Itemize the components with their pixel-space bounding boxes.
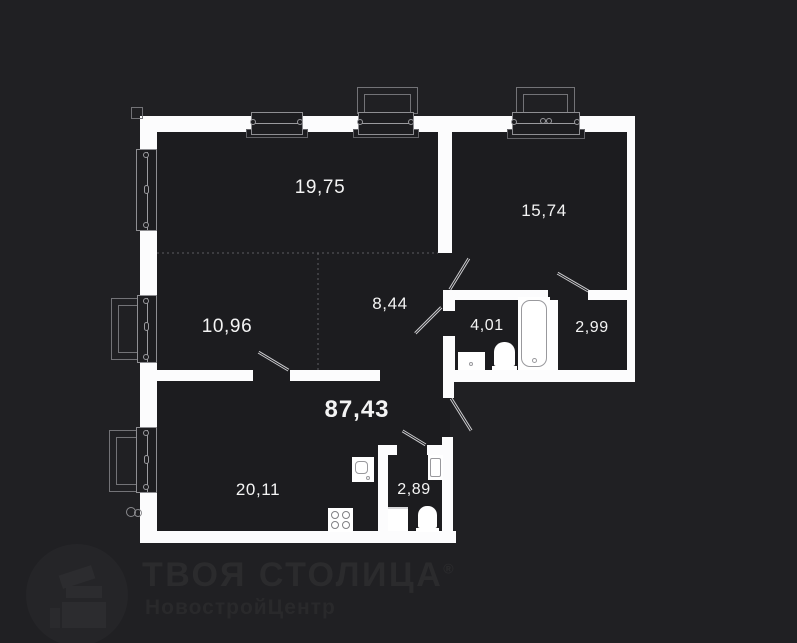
wall-bath-left-bottom — [443, 336, 455, 370]
balcony-outline — [364, 94, 411, 114]
window-hinge — [250, 119, 256, 125]
window-hinge — [143, 222, 149, 228]
registered-mark: ® — [443, 561, 456, 577]
washing-machine-icon — [388, 507, 408, 531]
balcony-outline — [116, 437, 137, 485]
window-icon — [512, 112, 580, 135]
wall-living-bedroom — [438, 132, 452, 253]
window-hinge — [143, 152, 149, 158]
wall-bottom-right — [443, 370, 635, 382]
room-area-bathroom: 4,01 — [442, 317, 532, 335]
wall-mid-right — [290, 370, 380, 381]
room-area-wardrobe: 2,99 — [547, 319, 637, 337]
wall-wardrobe-top — [588, 290, 627, 300]
balcony-outline — [118, 305, 138, 353]
developer-logo-icon — [26, 544, 128, 643]
window-hinge — [143, 298, 149, 304]
window-hinge — [143, 484, 149, 490]
room-area-wc: 2,89 — [369, 481, 459, 499]
window-hinge — [297, 119, 303, 125]
sink-icon — [458, 352, 485, 370]
watermark-title: ТВОЯ СТОЛИЦА® — [142, 556, 456, 595]
window-latch — [144, 455, 149, 464]
window-hinge — [511, 119, 517, 125]
window-hinge — [143, 430, 149, 436]
watermark-title-text: ТВОЯ СТОЛИЦА — [142, 556, 443, 594]
window-hinge — [143, 354, 149, 360]
window-icon — [358, 112, 414, 135]
room-area-room: 10,96 — [182, 316, 272, 338]
sink-icon — [428, 455, 443, 480]
room-area-hallway: 8,44 — [345, 294, 435, 314]
window-hinge — [408, 119, 414, 125]
corner-marker — [131, 107, 143, 119]
room-area-bedroom: 15,74 — [499, 201, 589, 221]
apartment-floor-plan: 19,75 15,74 10,96 8,44 4,01 2,99 87,43 2… — [0, 0, 797, 643]
room-area-kitchen: 20,11 — [213, 480, 303, 500]
wall-mid-left — [157, 370, 253, 381]
window-latch — [144, 322, 149, 331]
watermark-subtitle: НовостройЦентр — [145, 596, 336, 620]
kitchen-sink-icon — [352, 457, 374, 482]
window-hinge — [357, 119, 363, 125]
room-area-living: 19,75 — [275, 177, 365, 199]
total-area-label: 87,43 — [312, 396, 402, 424]
window-icon — [251, 112, 303, 135]
stove-icon — [328, 508, 353, 532]
wall-wc-top-left — [378, 445, 397, 455]
wall-bottom — [140, 531, 456, 543]
wall-wc-top-right — [427, 445, 442, 455]
window-latch — [144, 185, 149, 194]
toilet-base — [492, 366, 517, 370]
toilet-icon — [418, 506, 437, 528]
toilet-icon — [494, 342, 515, 366]
toilet-base — [416, 528, 439, 532]
wall-right — [627, 116, 635, 382]
entrance-door-swing — [450, 398, 472, 431]
window-handle — [546, 118, 552, 124]
window-hinge — [574, 119, 580, 125]
wall-entry-stub — [443, 382, 454, 398]
